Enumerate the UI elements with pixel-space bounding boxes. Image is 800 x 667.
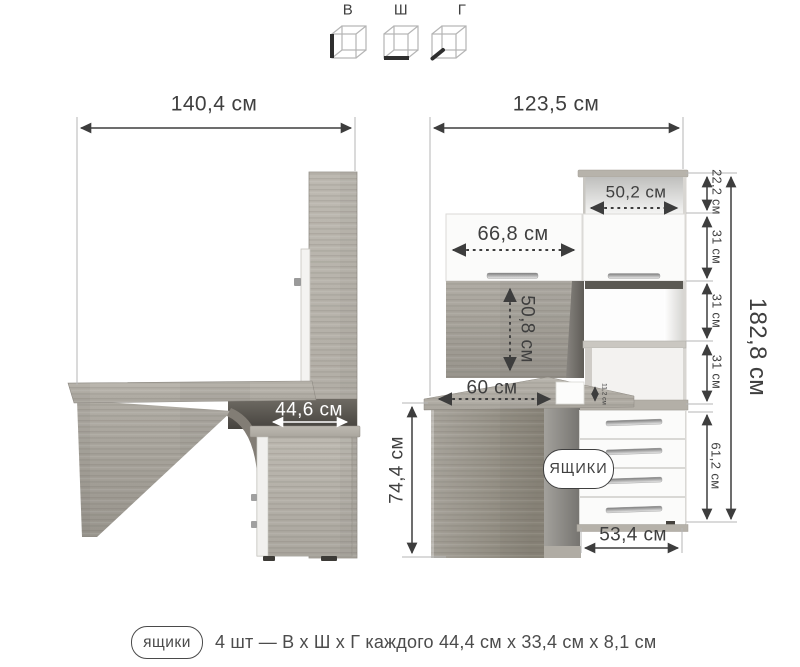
legend-depth-label: Г bbox=[458, 3, 467, 18]
dim-label-segment-1: 22,2 см bbox=[710, 169, 723, 214]
dim-label-segment-3: 31 см bbox=[710, 294, 723, 328]
width-cube-icon bbox=[384, 26, 418, 58]
depth-cube-icon bbox=[432, 26, 466, 59]
furniture-dimension-diagram: В Ш Г 140,4 см 44,6 см 123,5 см 50,2 см … bbox=[0, 0, 800, 667]
dim-label-door-width: 66,8 см bbox=[477, 224, 548, 244]
footer-drawers-pill-text: ящики bbox=[143, 634, 191, 652]
dim-label-drawer-unit-height: 61,2 см bbox=[710, 442, 723, 489]
dim-label-desktop-offset: 11,2 см bbox=[600, 383, 607, 405]
legend-height-label: В bbox=[343, 3, 353, 18]
dim-label-left-total-width: 140,4 см bbox=[171, 94, 258, 115]
height-cube-icon bbox=[332, 26, 366, 58]
dim-label-desk-height: 74,4 см bbox=[388, 436, 407, 504]
dimension-lines bbox=[0, 0, 800, 667]
drawers-callout-badge: ЯЩИКИ bbox=[543, 449, 614, 489]
dim-label-top-shelf-width: 50,2 см bbox=[606, 184, 667, 201]
dashed-dimension-arrows bbox=[439, 208, 677, 399]
dim-label-desktop-depth: 60 см bbox=[467, 379, 518, 398]
dim-label-drawer-unit-width: 53,4 см bbox=[599, 526, 667, 545]
dim-label-segment-2: 31 см bbox=[710, 230, 723, 264]
dim-label-segment-4: 31 см bbox=[710, 355, 723, 389]
dimension-legend-cubes bbox=[332, 26, 466, 59]
drawers-callout-text: ЯЩИКИ bbox=[549, 461, 607, 477]
legend-width-label: Ш bbox=[394, 3, 408, 18]
dim-label-back-panel-height: 50,8 см bbox=[518, 295, 537, 363]
dim-label-total-height: 182,8 см bbox=[745, 298, 769, 396]
footer-drawers-pill: ящики bbox=[131, 626, 203, 659]
footer-drawers-description: 4 шт — В х Ш х Г каждого 44,4 см х 33,4 … bbox=[215, 632, 656, 653]
dim-label-right-total-width: 123,5 см bbox=[513, 94, 600, 115]
dim-label-cabinet-depth: 44,6 см bbox=[275, 401, 343, 420]
